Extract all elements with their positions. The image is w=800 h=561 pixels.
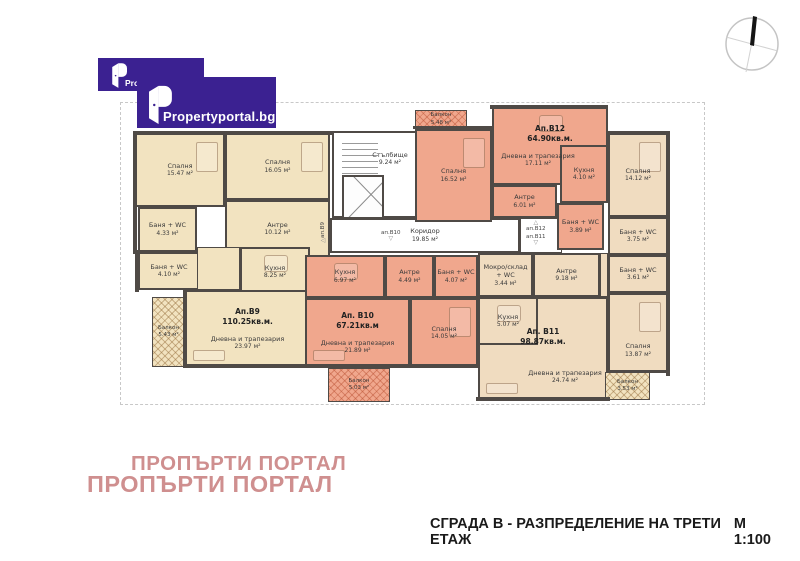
room-b11-hall: Антре9.18 м²: [533, 253, 600, 297]
drawing-scale: М 1:100: [734, 516, 782, 548]
room-b10-hall: Антре4.49 м²: [385, 255, 434, 298]
room-area-label: 5.03 м²: [349, 385, 370, 392]
room-name-label: Мокро/склад + WC3.44 м²: [480, 263, 531, 288]
room-area-label: 6.01 м²: [513, 202, 535, 210]
room-b12-bath: Баня + WC3.89 м²: [557, 203, 604, 250]
room-name-label: Кухня5.07 м²: [497, 313, 519, 329]
entry-marker-b10: ап.B10▽: [381, 230, 401, 242]
room-b9-bath-2: Баня + WC4.10 м²: [138, 252, 200, 290]
room-name-label: Баня + WC4.33 м²: [149, 221, 186, 237]
room-name-label: Антре10.12 м²: [264, 221, 290, 237]
room-area-label: 9.24 м²: [365, 159, 415, 167]
apartment-id-label: Ап.B9110.25кв.м.: [222, 307, 273, 327]
exterior-wall: [135, 250, 139, 292]
room-name-label: Кухня4.10 м²: [573, 166, 595, 182]
room-name-label: Баня + WC4.07 м²: [437, 268, 474, 284]
room-name-label: Антре9.18 м²: [555, 267, 577, 283]
room-name-label: Стълбище9.24 м²: [365, 151, 415, 167]
room-b10-living: Ап. B1067.21кв.мДневна и трапезария21.89…: [305, 298, 410, 368]
brand-text: Propertyportal.bg: [163, 109, 275, 124]
room-name-label: Дневна и трапезария21.89 м²: [321, 339, 395, 355]
room-b9-living: Ап.B9110.25кв.м.Дневна и трапезария23.97…: [185, 290, 310, 368]
room-area-label: 5.48 м²: [431, 120, 452, 127]
room-area-label: 19.85 м²: [410, 236, 440, 244]
room-area-label: 4.10 м²: [573, 174, 595, 182]
room-area-label: 8.25 м²: [264, 272, 286, 280]
room-b10-bedroom: Спалня14.05 м²: [410, 298, 478, 368]
room-area-label: 3.44 м²: [480, 280, 531, 288]
room-name-label: Антре4.49 м²: [398, 268, 420, 284]
sofa-furniture-icon: [193, 350, 225, 361]
room-b11-laundry: Мокро/склад + WC3.44 м²: [478, 253, 533, 297]
room-area-label: 14.12 м²: [625, 175, 651, 183]
apartment-id-label: Ап.B1264.90кв.м.: [527, 124, 572, 144]
room-area-label: 16.05 м²: [264, 167, 290, 175]
bed-furniture-icon: [196, 142, 218, 172]
watermark-line-2: ПРОПЪРТИ ПОРТАЛ: [87, 471, 333, 498]
room-b9-passage: [197, 247, 240, 290]
room-area-label: 15.47 м²: [167, 170, 193, 178]
room-name-label: Кухня8.25 м²: [264, 264, 286, 280]
arrow-left-icon: ◁: [321, 238, 326, 244]
room-name-label: Балкон5.03 м²: [349, 378, 370, 392]
drawing-title: СГРАДА В - РАЗПРЕДЕЛЕНИЕ НА ТРЕТИ ЕТАЖ: [430, 516, 734, 548]
bed-furniture-icon: [301, 142, 323, 172]
apartment-id-label: Ап. B1067.21кв.м: [336, 311, 379, 331]
room-area-label: 21.89 м²: [321, 347, 395, 355]
room-b9-bedroom-1: Спалня15.47 м²: [135, 133, 225, 207]
room-b11-strip: [600, 253, 608, 297]
entry-marker-b11: ап.B11▽: [526, 234, 546, 246]
room-b11-bath-2: Баня + WC3.61 м²: [608, 255, 668, 293]
room-b10-bath: Баня + WC4.07 м²: [434, 255, 478, 298]
room-name-label: Коридор19.85 м²: [410, 227, 440, 243]
room-b12-bedroom: Спалня16.52 м²: [415, 129, 492, 222]
propertyportal-logo: Propertyportal.bg: [137, 77, 276, 128]
compass-north-icon: [716, 8, 788, 84]
room-area-label: 5.43 м²: [158, 332, 179, 339]
room-area-label: 3.53 м²: [617, 386, 638, 393]
room-area-label: 3.75 м²: [619, 236, 656, 244]
elevator-shaft-icon: [342, 175, 384, 219]
room-name-label: Балкон5.43 м²: [158, 325, 179, 339]
exterior-wall: [648, 370, 670, 373]
room-area-label: 13.87 м²: [625, 351, 651, 359]
room-name-label: Антре6.01 м²: [513, 193, 535, 209]
room-name-label: Балкон3.53 м²: [617, 379, 638, 393]
exterior-wall: [133, 131, 137, 254]
room-name-label: Спалня16.05 м²: [264, 158, 290, 174]
room-name-label: Спалня13.87 м²: [625, 342, 651, 358]
room-area-label: 4.49 м²: [398, 277, 420, 285]
room-name-label: Спалня14.12 м²: [625, 167, 651, 183]
sofa-furniture-icon: [486, 383, 518, 394]
room-b10-balcony: Балкон5.03 м²: [328, 368, 390, 402]
bed-furniture-icon: [639, 302, 661, 332]
bed-furniture-icon: [463, 138, 485, 168]
room-area-label: 4.07 м²: [437, 277, 474, 285]
exterior-wall: [183, 288, 187, 368]
entry-marker-label: ап.B12: [526, 226, 546, 232]
exterior-wall: [606, 131, 670, 135]
room-b12-hall: Антре6.01 м²: [492, 185, 557, 218]
room-area-label: 17.11 м²: [501, 160, 575, 168]
room-b9-balcony: Балкон5.43 м²: [152, 297, 185, 367]
room-area-label: 24.74 м²: [528, 377, 602, 385]
room-name-label: Баня + WC3.75 м²: [619, 228, 656, 244]
room-area-label: 6.97 м²: [334, 277, 356, 285]
exterior-wall: [490, 105, 608, 109]
apartment-id-label: Ап. B1198.87кв.м.: [520, 327, 565, 347]
room-area-label: 9.18 м²: [555, 275, 577, 283]
room-area-label: 4.33 м²: [149, 230, 186, 238]
room-name-label: Дневна и трапезария17.11 м²: [501, 152, 575, 168]
room-name-label: Кухня6.97 м²: [334, 268, 356, 284]
room-b11-bedroom-2: Спалня13.87 м²: [608, 293, 668, 372]
room-name-label: Дневна и трапезария23.97 м²: [211, 335, 285, 351]
arrow-down-icon: ▽: [533, 240, 538, 246]
room-name-label: Баня + WC4.10 м²: [150, 263, 187, 279]
room-area-label: 10.12 м²: [264, 229, 290, 237]
room-stairwell: Стълбище9.24 м²: [332, 131, 420, 218]
exterior-wall: [413, 126, 494, 129]
exterior-wall: [476, 397, 610, 401]
entry-marker-label: ап.B9: [320, 222, 326, 238]
room-b11-bedroom-1: Спалня14.12 м²: [608, 133, 668, 217]
room-b10-kitchen: Кухня6.97 м²: [305, 255, 385, 298]
room-name-label: Баня + WC3.89 м²: [562, 218, 599, 234]
floorplan-page: Спалня15.47 м²Спалня16.05 м²Баня + WC4.3…: [0, 0, 800, 561]
room-area-label: 23.97 м²: [211, 343, 285, 351]
exterior-wall: [183, 364, 480, 368]
room-area-label: 3.61 м²: [619, 274, 656, 282]
room-name-label: Спалня16.52 м²: [440, 167, 466, 183]
drawing-caption: СГРАДА В - РАЗПРЕДЕЛЕНИЕ НА ТРЕТИ ЕТАЖ М…: [430, 516, 782, 548]
room-b11-bath-1: Баня + WC3.75 м²: [608, 217, 668, 255]
room-area-label: 3.89 м²: [562, 227, 599, 235]
room-b11-balcony: Балкон3.53 м²: [605, 372, 650, 400]
room-corridor: Коридор19.85 м²: [330, 218, 520, 253]
entry-marker-b9: ап.B9◁: [320, 222, 326, 244]
room-name-label: Балкон5.48 м²: [431, 112, 452, 126]
room-area-label: 14.05 м²: [431, 333, 457, 341]
room-area-label: 5.07 м²: [497, 321, 519, 329]
entry-marker-b12: △ап.B12: [526, 220, 546, 232]
arrow-down-icon: ▽: [388, 236, 393, 242]
room-area-label: 4.10 м²: [150, 271, 187, 279]
exterior-wall: [666, 131, 670, 376]
room-name-label: Спалня15.47 м²: [167, 162, 193, 178]
room-name-label: Баня + WC3.61 м²: [619, 266, 656, 282]
room-b9-bedroom-2: Спалня16.05 м²: [225, 133, 330, 200]
room-name-label: Дневна и трапезария24.74 м²: [528, 369, 602, 385]
room-name-label: Спалня14.05 м²: [431, 325, 457, 341]
room-b9-bath-1: Баня + WC4.33 м²: [138, 207, 197, 252]
exterior-wall: [133, 131, 332, 135]
room-area-label: 16.52 м²: [440, 176, 466, 184]
